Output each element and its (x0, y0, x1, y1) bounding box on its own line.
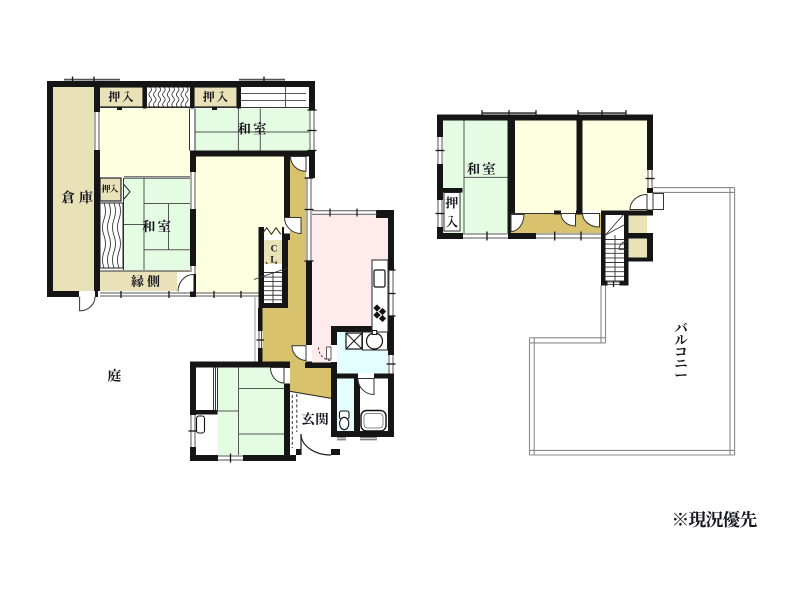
svg-text:C: C (271, 245, 278, 255)
svg-text:L: L (270, 256, 276, 266)
